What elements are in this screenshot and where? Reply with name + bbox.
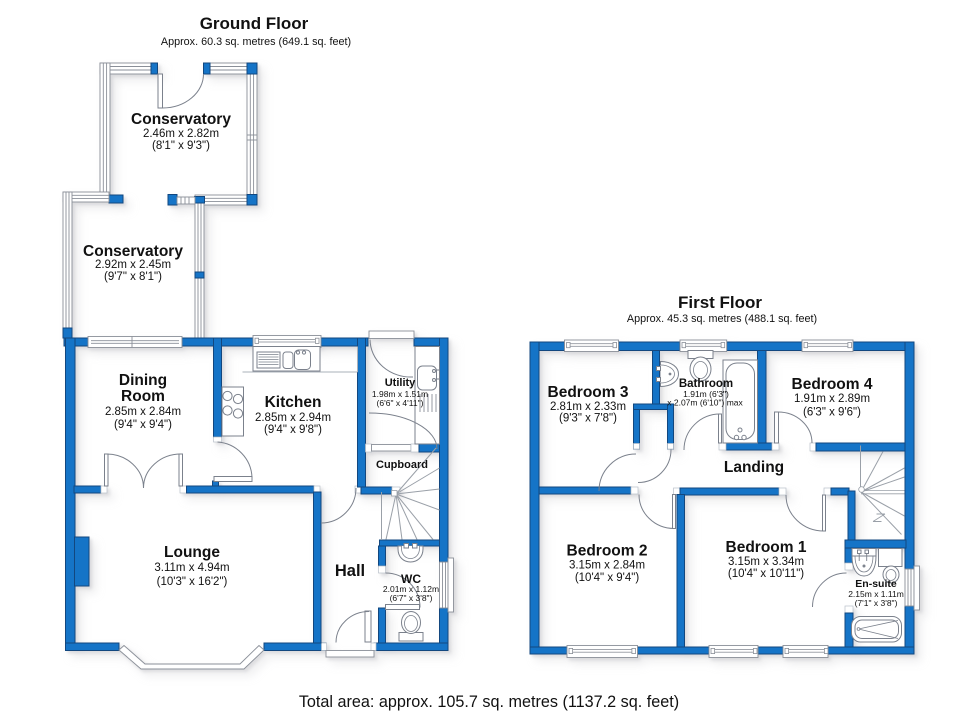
svg-text:(6'3" x 9'6"): (6'3" x 9'6"): [803, 407, 861, 419]
svg-text:Lounge: Lounge: [164, 544, 220, 561]
svg-text:x 2.07m (6'10") max: x 2.07m (6'10") max: [667, 398, 743, 408]
svg-text:3.15m x 2.84m: 3.15m x 2.84m: [569, 560, 645, 572]
svg-text:Landing: Landing: [724, 459, 784, 476]
svg-text:Kitchen: Kitchen: [265, 394, 322, 411]
svg-text:(9'7" x 8'1"): (9'7" x 8'1"): [104, 271, 162, 283]
svg-text:(7'1" x 3'8"): (7'1" x 3'8"): [855, 598, 898, 608]
svg-text:2.92m x 2.45m: 2.92m x 2.45m: [95, 259, 171, 271]
svg-text:Approx. 45.3 sq. metres (488.1: Approx. 45.3 sq. metres (488.1 sq. feet): [627, 313, 817, 325]
svg-text:2.81m x 2.33m: 2.81m x 2.33m: [550, 401, 626, 413]
svg-text:(10'4" x 9'4"): (10'4" x 9'4"): [575, 572, 640, 584]
svg-text:2.85m x 2.84m: 2.85m x 2.84m: [105, 406, 181, 418]
svg-text:Conservatory: Conservatory: [131, 111, 231, 128]
svg-text:Bedroom 3: Bedroom 3: [548, 384, 629, 401]
svg-text:(10'4" x 10'11"): (10'4" x 10'11"): [728, 568, 804, 580]
svg-text:Room: Room: [121, 388, 165, 405]
svg-text:(9'4" x 9'8"): (9'4" x 9'8"): [264, 424, 322, 436]
svg-text:(9'3" x 7'8"): (9'3" x 7'8"): [559, 413, 617, 425]
svg-text:1.91m x 2.89m: 1.91m x 2.89m: [794, 393, 870, 405]
svg-text:2.46m x 2.82m: 2.46m x 2.82m: [143, 128, 219, 140]
svg-text:First Floor: First Floor: [678, 293, 762, 312]
svg-text:Ground Floor: Ground Floor: [200, 14, 309, 33]
svg-text:3.15m x 3.34m: 3.15m x 3.34m: [728, 556, 804, 568]
svg-text:3.11m x 4.94m: 3.11m x 4.94m: [154, 562, 229, 574]
svg-text:(8'1" x 9'3"): (8'1" x 9'3"): [152, 140, 210, 152]
svg-text:Utility: Utility: [385, 377, 416, 389]
svg-text:Hall: Hall: [335, 562, 365, 580]
svg-text:Dining: Dining: [119, 372, 167, 389]
svg-text:(6'7" x 3'8"): (6'7" x 3'8"): [390, 593, 433, 603]
svg-text:Conservatory: Conservatory: [83, 243, 183, 260]
svg-text:Bedroom 1: Bedroom 1: [726, 539, 807, 556]
svg-text:2.85m x 2.94m: 2.85m x 2.94m: [255, 412, 331, 424]
svg-text:(6'6" x 4'11"): (6'6" x 4'11"): [377, 398, 424, 408]
svg-text:(9'4" x 9'4"): (9'4" x 9'4"): [114, 419, 172, 431]
svg-text:(10'3" x 16'2"): (10'3" x 16'2"): [157, 576, 228, 588]
svg-text:Cupboard: Cupboard: [376, 459, 428, 471]
svg-text:Bedroom 2: Bedroom 2: [567, 543, 648, 560]
svg-text:Approx. 60.3 sq. metres (649.1: Approx. 60.3 sq. metres (649.1 sq. feet): [161, 36, 351, 48]
svg-text:Total area: approx. 105.7 sq.: Total area: approx. 105.7 sq. metres (11…: [299, 693, 679, 711]
svg-text:Bedroom 4: Bedroom 4: [792, 376, 873, 393]
